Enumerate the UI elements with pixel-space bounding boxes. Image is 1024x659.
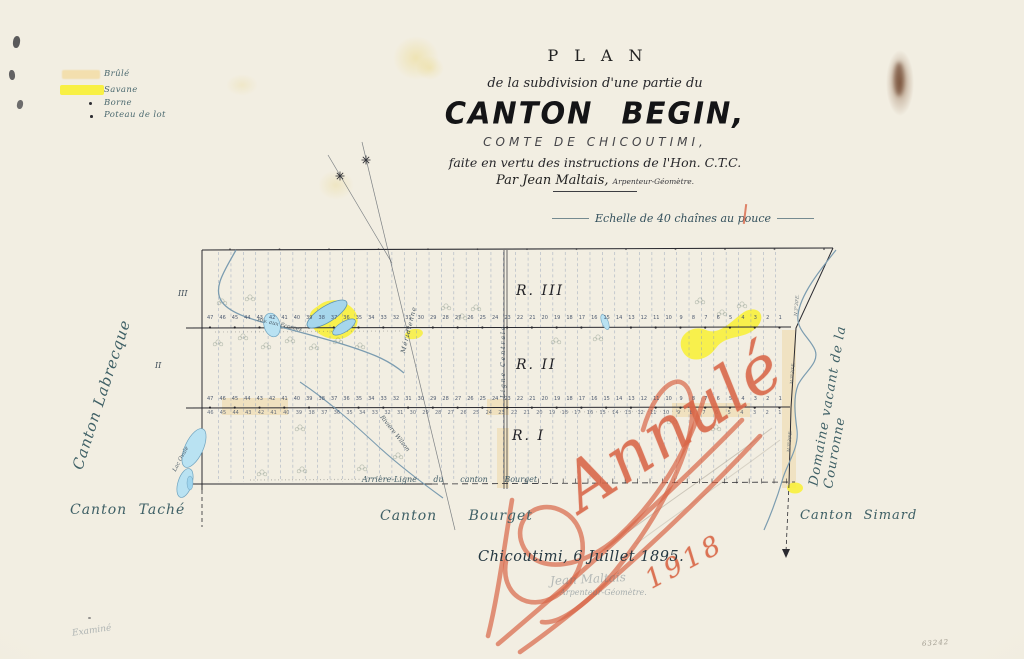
lot-number: 40	[280, 410, 293, 416]
tree-scribble	[558, 341, 561, 344]
lot-number: 40	[291, 396, 303, 402]
lot-number: 2	[762, 315, 774, 321]
tree-scribble	[600, 338, 603, 341]
lot-number: 23	[495, 410, 508, 416]
lot-number: 26	[464, 315, 476, 321]
survey-diagonal	[328, 155, 392, 263]
lot-number: 18	[563, 315, 575, 321]
lot-number: 34	[365, 396, 377, 402]
lot-number: 36	[331, 410, 344, 416]
tree-scribble	[400, 456, 403, 459]
lot-number: 35	[343, 410, 356, 416]
margin-numeral-2: II	[155, 361, 161, 370]
lot-number: 19	[551, 315, 563, 321]
lot-number: 17	[571, 410, 584, 416]
lot-number: 15	[601, 315, 613, 321]
lot-number: 41	[278, 396, 290, 402]
lot-number: 38	[305, 410, 318, 416]
survey-plan-page: Brûlé Savane Borne Poteau de lot PLAN de…	[0, 0, 1024, 659]
lot-number: 47	[204, 315, 216, 321]
lot-number: 6	[712, 315, 724, 321]
tree-scribble	[316, 347, 319, 350]
lot-number: 30	[407, 410, 420, 416]
lot-number: 20	[533, 410, 546, 416]
lot-number: 21	[526, 396, 538, 402]
lot-number: 36	[340, 396, 352, 402]
lot-number: 47	[204, 396, 216, 402]
lot-number: 33	[377, 396, 389, 402]
tree-scribble	[448, 307, 451, 310]
lot-number: 5	[724, 315, 736, 321]
lot-number: 32	[390, 396, 402, 402]
lot-number: 17	[576, 396, 588, 402]
lot-number: 33	[377, 315, 389, 321]
lot-number: 19	[551, 396, 563, 402]
lot-number: 28	[432, 410, 445, 416]
lot-number: 7	[700, 315, 712, 321]
lot-number: 45	[229, 315, 241, 321]
arriere-ligne-label: Arrière-Ligne du canton Bourget	[362, 475, 537, 484]
lot-number: 44	[241, 315, 253, 321]
lot-number: 33	[369, 410, 382, 416]
lot-number: 15	[601, 396, 613, 402]
lot-number: 40	[291, 315, 303, 321]
lot-number: 35	[353, 396, 365, 402]
lot-number: 3	[749, 315, 761, 321]
lot-number: 32	[390, 315, 402, 321]
lot-number: 23	[501, 315, 513, 321]
range-label-3: R. III	[516, 283, 564, 299]
tree-scribble	[220, 343, 223, 346]
lot-number: 29	[427, 396, 439, 402]
lot-number: 39	[293, 410, 306, 416]
lot-number: 29	[419, 410, 432, 416]
lot-number: 41	[278, 315, 290, 321]
lot-number: 22	[508, 410, 521, 416]
lot-number: 37	[328, 315, 340, 321]
lot-number: 20	[539, 315, 551, 321]
lot-number: 13	[625, 396, 637, 402]
tree-scribble	[302, 428, 305, 431]
margin-numeral-3: III	[178, 289, 187, 298]
canton-top-boundary	[202, 248, 833, 250]
range-label-1: R. I	[512, 428, 545, 444]
canton-right-boundary-ext	[786, 484, 789, 552]
lot-number: 27	[452, 396, 464, 402]
lot-number: 28	[439, 315, 451, 321]
lot-number: 16	[588, 315, 600, 321]
lot-number: 36	[340, 315, 352, 321]
lot-numbers-range3: 4746454443424140393837363534333231302928…	[204, 315, 786, 321]
lot-number: 42	[266, 396, 278, 402]
lot-number: 18	[558, 410, 571, 416]
lot-number: 27	[444, 410, 457, 416]
tree-scribble	[252, 298, 255, 301]
lot-number: 30	[415, 315, 427, 321]
lot-number: 46	[216, 396, 228, 402]
lot-number: 37	[318, 410, 331, 416]
dateline: Chicoutimi, 6 Juillet 1895.	[478, 549, 684, 565]
range-label-2: R. II	[516, 357, 557, 373]
tree-scribble	[362, 346, 365, 349]
lot-number: 28	[439, 396, 451, 402]
lot-number: 9	[675, 315, 687, 321]
lot-number: 42	[255, 410, 268, 416]
lot-number: 1	[774, 410, 787, 416]
lot-number: 20	[539, 396, 551, 402]
canton-tache-label: Canton Taché	[70, 502, 185, 518]
lot-number: 14	[613, 315, 625, 321]
lot-number: 21	[526, 315, 538, 321]
lot-number: 43	[254, 396, 266, 402]
micro-notes	[215, 331, 400, 332]
lot-number: 25	[477, 315, 489, 321]
tree-scribble	[264, 473, 267, 476]
lot-number: 44	[241, 396, 253, 402]
lot-number: 8	[687, 315, 699, 321]
lot-number: 18	[563, 396, 575, 402]
tree-scribble	[292, 340, 295, 343]
tree-scribble	[364, 468, 367, 471]
river-ecorces	[218, 250, 404, 373]
lot-number: 17	[576, 315, 588, 321]
lot-number: 39	[303, 396, 315, 402]
lot-number: 34	[356, 410, 369, 416]
central-line-label: Ligne Centrale	[500, 325, 507, 398]
lot-number: 15	[596, 410, 609, 416]
lot-number: 38	[316, 396, 328, 402]
lot-number: 24	[482, 410, 495, 416]
lot-number: 22	[514, 396, 526, 402]
ink-speck	[88, 617, 91, 619]
lot-number: 43	[242, 410, 255, 416]
canton-bourget-label: Canton Bourget	[380, 508, 533, 524]
lot-number: 37	[328, 396, 340, 402]
tree-scribble	[744, 305, 747, 308]
lake-sliver	[187, 476, 193, 490]
savane-blob	[787, 483, 803, 494]
lot-number: 14	[613, 396, 625, 402]
signature-role: Arpenteur-Géomètre.	[560, 588, 647, 597]
lot-number: 16	[588, 396, 600, 402]
tree-scribble	[478, 308, 481, 311]
lot-number: 41	[267, 410, 280, 416]
canton-simard-label: Canton Simard	[800, 508, 917, 523]
lot-number: 25	[477, 396, 489, 402]
tree-scribble	[702, 301, 705, 304]
lot-number: 31	[394, 410, 407, 416]
lot-number: 44	[229, 410, 242, 416]
arrow-tip	[782, 549, 790, 558]
lot-number: 31	[402, 396, 414, 402]
lot-number: 1	[774, 315, 786, 321]
lot-number: 46	[216, 315, 228, 321]
lot-number: 27	[452, 315, 464, 321]
lot-number: 35	[353, 315, 365, 321]
tree-scribble	[245, 337, 248, 340]
lot-number: 39	[303, 315, 315, 321]
lot-number: 45	[217, 410, 230, 416]
lot-number: 25	[470, 410, 483, 416]
lot-number: 45	[229, 396, 241, 402]
lot-number: 21	[520, 410, 533, 416]
lot-number: 19	[546, 410, 559, 416]
lot-number: 11	[650, 315, 662, 321]
lot-number: 10	[662, 315, 674, 321]
lot-number: 30	[415, 396, 427, 402]
lot-number: 16	[584, 410, 597, 416]
lot-number: 22	[514, 315, 526, 321]
lot-number: 46	[204, 410, 217, 416]
lot-number: 13	[625, 315, 637, 321]
lot-number: 29	[427, 315, 439, 321]
lot-number: 24	[489, 315, 501, 321]
lot-number: 26	[464, 396, 476, 402]
lot-number: 26	[457, 410, 470, 416]
lot-number: 38	[316, 315, 328, 321]
lot-number: 34	[365, 315, 377, 321]
lot-number: 12	[638, 315, 650, 321]
lot-number: 4	[737, 315, 749, 321]
